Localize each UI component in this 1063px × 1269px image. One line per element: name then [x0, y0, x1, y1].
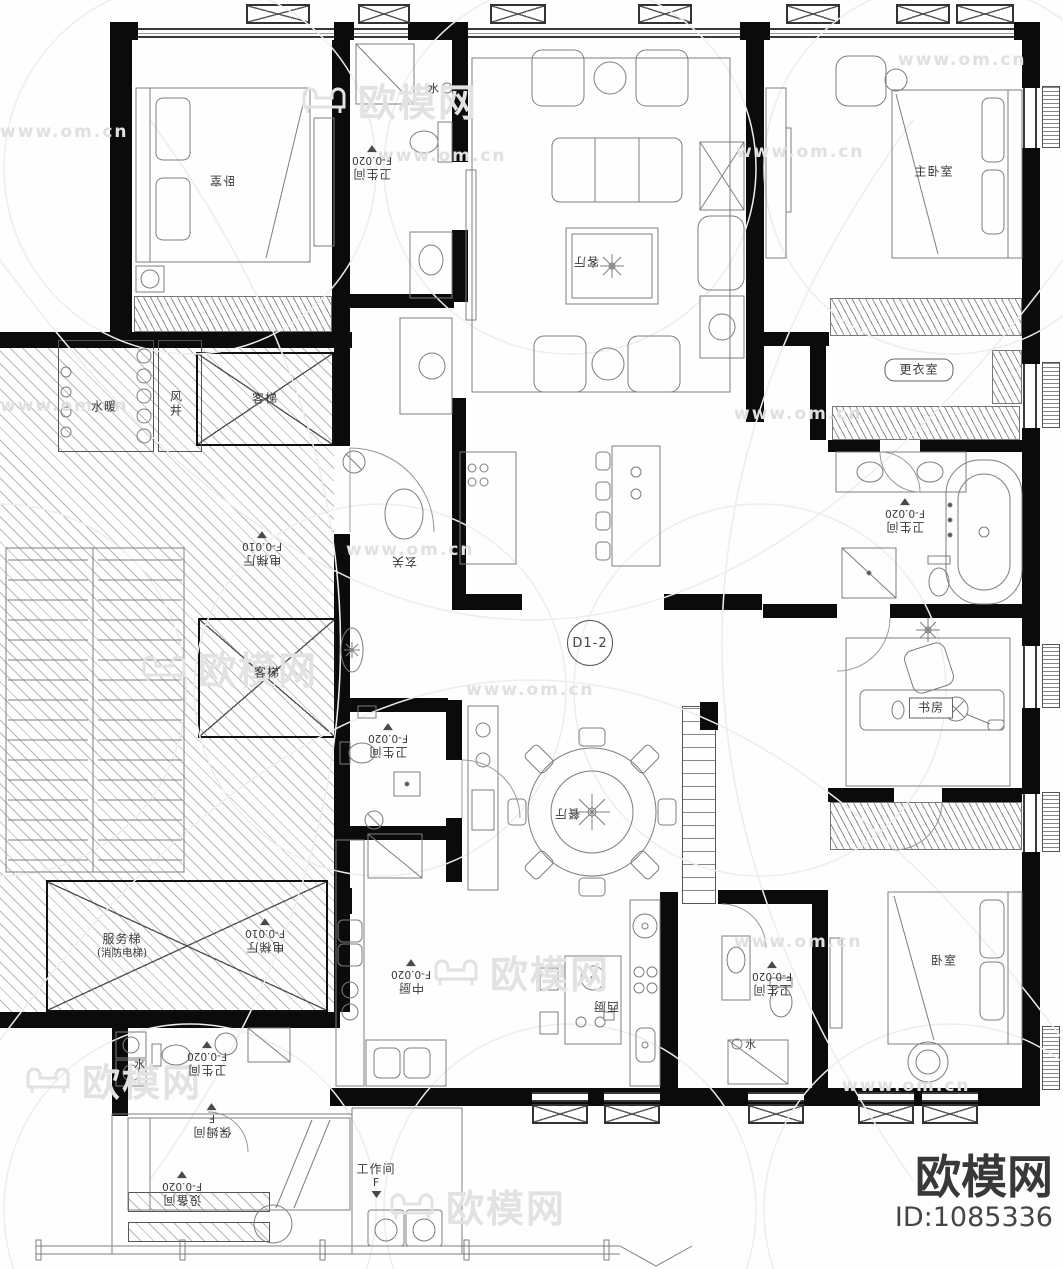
master-bath-fixtures: [836, 452, 1022, 642]
room-level: F-0.020: [752, 969, 792, 982]
stairs: [6, 548, 184, 872]
room-label-master-bedroom: 主卧室: [914, 165, 953, 180]
watermark-logo-text: 欧模网: [446, 1178, 566, 1233]
watermark-logo-text: 欧模网: [358, 72, 478, 127]
level-mark-icon: [767, 961, 777, 968]
room-label-elevator-hall-lower: 电梯厅 F-0.010: [245, 918, 285, 954]
room-name: 主卧室: [914, 165, 953, 180]
room-label-foyer: 玄关: [391, 554, 417, 569]
watermark-url: www.om.cn: [0, 122, 129, 142]
watermark-url: www.om.cn: [734, 404, 863, 424]
watermark-logo: 欧模网: [20, 1052, 202, 1107]
room-name: 卫生间: [885, 519, 924, 534]
room-name: 卫生间: [187, 1062, 226, 1077]
level-mark-icon: [177, 1171, 187, 1178]
fence: [36, 1240, 692, 1266]
watermark-url: www.om.cn: [842, 1076, 971, 1096]
room-name: 客梯: [254, 666, 280, 681]
room-name: 保姆间: [192, 1124, 231, 1139]
unit-tag-text: D1-2: [572, 636, 607, 651]
watermark-logo-text: 欧模网: [490, 944, 610, 999]
room-level: F-0.020: [352, 153, 392, 166]
room-label-elevator-upper: 客梯: [252, 392, 278, 407]
site-logo-text: 欧模网: [895, 1152, 1053, 1203]
room-name: 卫生间: [368, 744, 407, 759]
bath-mid-left-fixtures: [340, 706, 520, 829]
hall-furniture: [460, 446, 660, 566]
water-label: 水: [745, 1036, 756, 1052]
room-label-shaft-plumbing: 水暖: [91, 400, 117, 415]
watermark-url: www.om.cn: [736, 142, 865, 162]
room-name: 餐厅: [554, 806, 580, 821]
room-label-shaft-air: 风井: [168, 390, 183, 418]
room-name: 西厨: [593, 999, 619, 1014]
room-name: 客梯: [252, 392, 278, 407]
room-name: 卧室: [209, 173, 235, 188]
room-label-kitchen-western: 西厨: [593, 999, 619, 1014]
room-level: F-0.020: [368, 731, 408, 744]
room-label-dressing-room: 更衣室: [884, 359, 953, 382]
room-level: F-0.020: [162, 1179, 202, 1192]
floorplan-canvas: 卧室 卫生间 F-0.020 客厅 主卧室 更衣室 卫生间 F-0.020 书房…: [0, 0, 1063, 1269]
room-name: 中厨: [398, 980, 424, 995]
room-label-bedroom-bottom-right: 卧室: [931, 954, 957, 969]
room-label-bath-top: 卫生间 F-0.020: [352, 145, 392, 181]
room-level: F-0.010: [242, 539, 282, 552]
room-level: F-0.020: [885, 506, 925, 519]
dining-furniture: [468, 706, 676, 896]
level-mark-icon: [367, 145, 377, 152]
room-level: F-0.020: [187, 1049, 227, 1062]
room-label-bedroom-top-left: 卧室: [209, 173, 235, 188]
watermark-logo: 欧模网: [136, 640, 318, 695]
room-name: 设备间: [162, 1192, 201, 1207]
room-level: F-0.010: [245, 926, 285, 939]
sofa-icon: [428, 955, 484, 989]
level-mark-icon: [900, 498, 910, 505]
level-mark-icon: [383, 723, 393, 730]
watermark-url: www.om.cn: [734, 932, 863, 952]
watermark-url: www.om.cn: [898, 50, 1027, 70]
room-label-elevator-hall-upper: 电梯厅 F-0.010: [242, 531, 282, 567]
room-label-elevator-lower: 客梯: [254, 666, 280, 681]
site-id: ID:1085336: [895, 1203, 1053, 1233]
level-mark-icon: [371, 1191, 381, 1198]
room-label-nanny-room: 保姆间 F: [192, 1103, 231, 1139]
room-label-dining-room: 餐厅: [554, 806, 580, 821]
room-name: 卫生间: [752, 982, 791, 997]
room-label-workroom: 工作间 F: [356, 1162, 395, 1198]
room-name: 水暖: [91, 400, 117, 415]
water-label: 水: [134, 1056, 145, 1072]
room-name: 更衣室: [884, 359, 953, 382]
room-name: 电梯厅: [242, 552, 281, 567]
door-arc: [880, 452, 920, 492]
room-label-bath-mid-left: 卫生间 F-0.020: [368, 723, 408, 759]
room-label-living-room: 客厅: [573, 254, 599, 269]
room-label-study: 书房: [909, 698, 953, 719]
unit-tag: D1-2: [567, 620, 613, 666]
room-name: 卧室: [931, 954, 957, 969]
site-brand: 欧模网 ID:1085336: [895, 1152, 1053, 1232]
room-level: F: [373, 1177, 379, 1190]
sofa-icon: [136, 651, 192, 685]
room-label-kitchen-chinese: 中厨 F-0.020: [391, 959, 431, 995]
foyer-furniture: [341, 448, 434, 672]
room-name: 风井: [168, 390, 183, 418]
room-name: 工作间: [356, 1162, 395, 1177]
watermark-logo: 欧模网: [384, 1178, 566, 1233]
sofa-icon: [296, 83, 352, 117]
room-label-equipment-room: 设备间 F-0.020: [162, 1171, 202, 1207]
room-name: 客厅: [573, 254, 599, 269]
sofa-icon: [20, 1063, 76, 1097]
watermark-url: www.om.cn: [378, 146, 507, 166]
room-label-master-bath: 卫生间 F-0.020: [885, 498, 925, 534]
level-mark-icon: [260, 918, 270, 925]
room-label-service-elevator: 服务梯 (消防电梯): [97, 932, 147, 960]
room-sublabel: (消防电梯): [97, 947, 147, 960]
room-level: F-0.020: [391, 967, 431, 980]
level-mark-icon: [202, 1041, 212, 1048]
room-name: 玄关: [391, 554, 417, 569]
room-level: F: [209, 1111, 215, 1124]
room-name: 电梯厅: [245, 939, 284, 954]
watermark-logo: 欧模网: [428, 944, 610, 999]
room-label-bath-nanny: 卫生间 F-0.020: [187, 1041, 227, 1077]
level-mark-icon: [257, 531, 267, 538]
room-name: 卫生间: [352, 166, 391, 181]
water-label: 水: [428, 80, 439, 96]
room-name: 书房: [909, 698, 953, 719]
level-mark-icon: [406, 959, 416, 966]
room-label-bath-bottom-right: 卫生间 F-0.020: [752, 961, 792, 997]
watermark-url: www.om.cn: [466, 680, 595, 700]
room-name: 服务梯: [102, 932, 141, 947]
watermark-logo: 欧模网: [296, 72, 478, 127]
level-mark-icon: [207, 1103, 217, 1110]
